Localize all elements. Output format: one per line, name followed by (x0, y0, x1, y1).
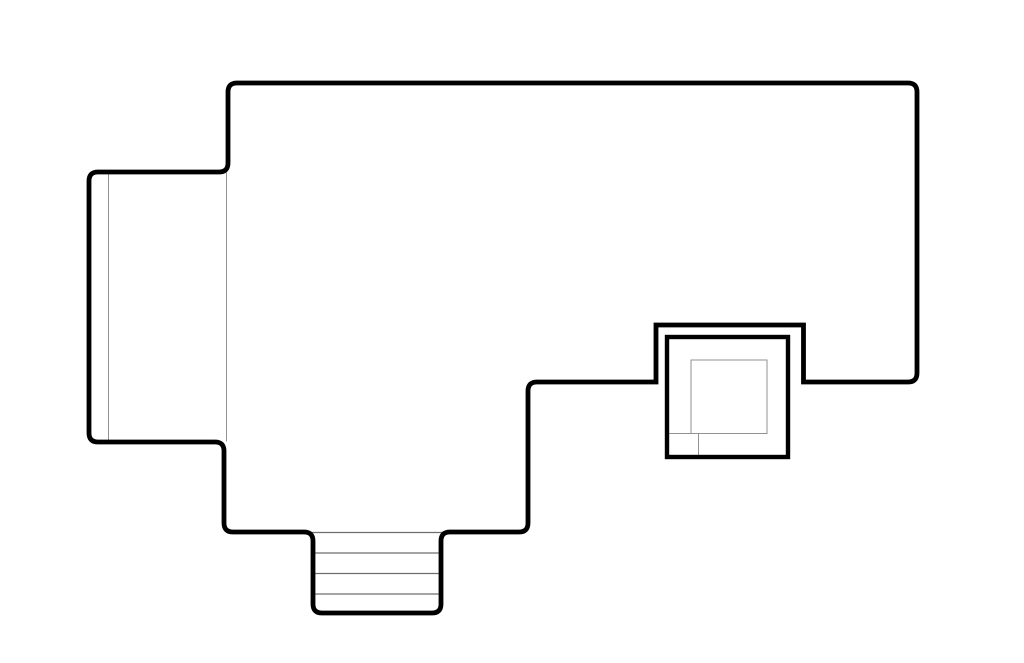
roof-plan-canvas (0, 0, 1024, 663)
chimney-curb (667, 337, 788, 457)
roof-plan-drawing (0, 0, 1024, 663)
roof-outline (89, 83, 917, 613)
chimney-flue-opening (691, 360, 767, 434)
